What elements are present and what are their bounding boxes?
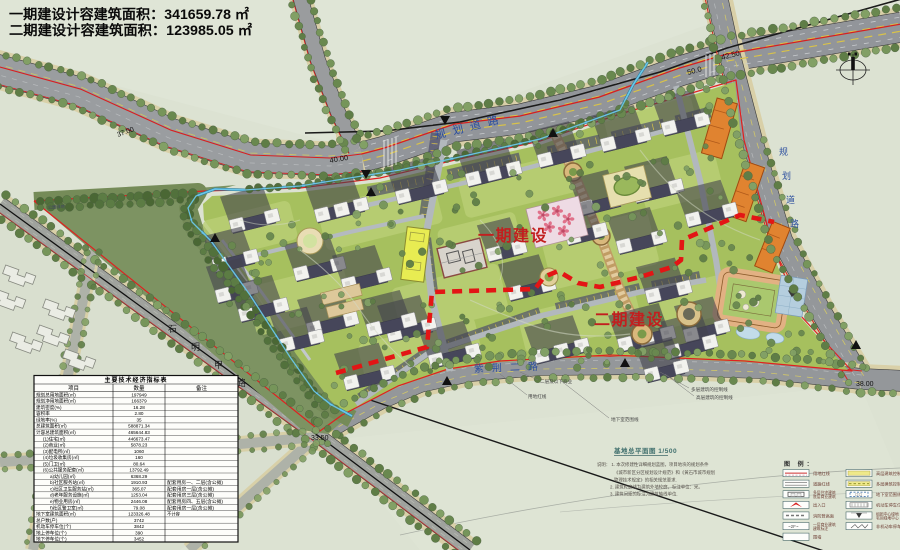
svg-text:3452: 3452 bbox=[134, 537, 145, 542]
svg-text:f)社区警卫室(㎡): f)社区警卫室(㎡) bbox=[50, 504, 84, 511]
svg-text:道: 道 bbox=[786, 194, 795, 205]
svg-text:总建筑面积(㎡): 总建筑面积(㎡) bbox=[36, 423, 67, 430]
svg-text:二层及以下商业: 二层及以下商业 bbox=[540, 378, 573, 385]
svg-text:基地总平面图 1/500: 基地总平面图 1/500 bbox=[613, 446, 677, 455]
svg-text:588871.34: 588871.34 bbox=[128, 424, 150, 429]
svg-text:石: 石 bbox=[168, 324, 177, 334]
svg-text:2.80: 2.80 bbox=[135, 411, 144, 416]
svg-text:《城市新区分区规划设计规范》和《黄石市城市规划: 《城市新区分区规划设计规范》和《黄石市城市规划 bbox=[614, 469, 715, 476]
svg-text:c)社区卫生服务站(㎡): c)社区卫生服务站(㎡) bbox=[50, 486, 94, 493]
svg-text:绿地率(%): 绿地率(%) bbox=[36, 417, 57, 424]
svg-text:1910.93: 1910.93 bbox=[131, 480, 148, 485]
svg-text:3. 建筑间距的标注为建筑轴线单位.: 3. 建筑间距的标注为建筑轴线单位. bbox=[610, 491, 678, 498]
svg-text:底层商业建筑: 底层商业建筑 bbox=[813, 494, 836, 499]
svg-text:197949: 197949 bbox=[131, 392, 147, 397]
svg-text:一期建设计容建筑面积：341659.78 ㎡: 一期建设计容建筑面积：341659.78 ㎡ bbox=[9, 6, 250, 22]
svg-text:管理技术规定》的相关规范要求.: 管理技术规定》的相关规范要求. bbox=[614, 477, 677, 484]
svg-text:2446.08: 2446.08 bbox=[131, 499, 148, 504]
svg-text:总户数(户): 总户数(户) bbox=[36, 517, 58, 524]
svg-text:一期建设: 一期建设 bbox=[478, 226, 548, 245]
svg-text:6368.29: 6368.29 bbox=[131, 474, 148, 479]
svg-text:166379: 166379 bbox=[131, 399, 147, 404]
svg-text:宅间绿地中心: 宅间绿地中心 bbox=[876, 515, 899, 520]
svg-text:16.28: 16.28 bbox=[133, 405, 145, 410]
svg-text:2. 建筑轮廓线为建筑外墙轮廓，标注单位：米。: 2. 建筑轮廓线为建筑外墙轮廓，标注单位：米。 bbox=[610, 484, 703, 491]
svg-text:口口: 口口 bbox=[855, 493, 863, 497]
svg-text:(2)商业(㎡): (2)商业(㎡) bbox=[43, 442, 66, 449]
svg-text:容积率: 容积率 bbox=[36, 410, 50, 417]
svg-text:5878.23: 5878.23 bbox=[131, 443, 148, 448]
svg-text:80.64: 80.64 bbox=[133, 461, 145, 466]
svg-text:明: 明 bbox=[191, 342, 200, 352]
svg-text:3842: 3842 bbox=[134, 524, 145, 529]
svg-text:规: 规 bbox=[779, 147, 788, 157]
svg-text:(6)公共服务配套(㎡): (6)公共服务配套(㎡) bbox=[43, 467, 84, 474]
svg-text:机动车停车位: 机动车停车位 bbox=[876, 502, 900, 509]
svg-text:79.08: 79.08 bbox=[133, 505, 145, 510]
svg-text:3742: 3742 bbox=[134, 518, 145, 523]
svg-text:出入口: 出入口 bbox=[813, 502, 826, 509]
svg-text:~2F~: ~2F~ bbox=[788, 524, 799, 529]
svg-text:不计容: 不计容 bbox=[167, 511, 181, 518]
svg-text:1253.04: 1253.04 bbox=[131, 493, 148, 498]
svg-text:(3)配电所(㎡): (3)配电所(㎡) bbox=[43, 448, 71, 455]
svg-text:主要技术经济指标表: 主要技术经济指标表 bbox=[104, 376, 167, 384]
svg-text:465644.83: 465644.83 bbox=[128, 430, 150, 435]
svg-text:配套用房三层(含公摊): 配套用房三层(含公摊) bbox=[167, 492, 215, 499]
svg-text:说明： 1. 本次修建性详细规划蓝图，项目地块的规划条件: 说明： 1. 本次修建性详细规划蓝图，项目地块的规划条件 bbox=[597, 461, 709, 468]
svg-text:(5)门卫(㎡): (5)门卫(㎡) bbox=[43, 460, 66, 467]
svg-text:建筑密度(%): 建筑密度(%) bbox=[36, 404, 62, 411]
svg-text:机动车停车位(个): 机动车停车位(个) bbox=[36, 523, 72, 530]
svg-text:道路红线: 道路红线 bbox=[813, 481, 831, 488]
svg-text:多层建筑控制线: 多层建筑控制线 bbox=[876, 481, 900, 488]
svg-text:规划总用地面积(㎡): 规划总用地面积(㎡) bbox=[36, 391, 76, 398]
svg-text:二期建设: 二期建设 bbox=[594, 310, 664, 329]
svg-text:围墙: 围墙 bbox=[813, 534, 821, 541]
svg-text:高层建筑控制线: 高层建筑控制线 bbox=[876, 470, 900, 477]
svg-text:(1)住宅(㎡): (1)住宅(㎡) bbox=[43, 435, 66, 441]
svg-text:配套用房四、五层(含公摊): 配套用房四、五层(含公摊) bbox=[167, 498, 224, 505]
svg-text:图 例：: 图 例： bbox=[784, 460, 816, 468]
svg-text:数量: 数量 bbox=[133, 384, 145, 392]
svg-text:消防登高面: 消防登高面 bbox=[813, 512, 834, 519]
svg-text:路: 路 bbox=[790, 218, 799, 229]
svg-text:38.00: 38.00 bbox=[856, 381, 874, 388]
svg-text:1060: 1060 bbox=[134, 449, 145, 454]
svg-text:二期建设计容建筑面积：123985.05 ㎡: 二期建设计容建筑面积：123985.05 ㎡ bbox=[9, 22, 253, 38]
svg-text:规划净用地面积(㎡): 规划净用地面积(㎡) bbox=[36, 398, 76, 405]
svg-text:123326.48: 123326.48 bbox=[128, 512, 150, 517]
svg-text:计容总建筑面积(㎡): 计容总建筑面积(㎡) bbox=[36, 429, 76, 436]
svg-text:项目: 项目 bbox=[68, 385, 79, 392]
svg-text:划: 划 bbox=[782, 170, 791, 181]
svg-text:33.50: 33.50 bbox=[311, 435, 329, 442]
svg-text:e)物业用房(㎡): e)物业用房(㎡) bbox=[50, 498, 81, 505]
svg-text:地下室范围线: 地下室范围线 bbox=[611, 416, 639, 423]
svg-text:地上停车位(个): 地上停车位(个) bbox=[36, 529, 67, 536]
svg-text:多层建筑的控制线: 多层建筑的控制线 bbox=[691, 386, 728, 393]
svg-text:建筑标注: 建筑标注 bbox=[813, 526, 828, 531]
svg-text:地下室范围线: 地下室范围线 bbox=[876, 491, 900, 498]
svg-text:用地红线: 用地红线 bbox=[813, 470, 831, 477]
svg-text:13792.49: 13792.49 bbox=[129, 468, 149, 473]
svg-text:365.07: 365.07 bbox=[132, 487, 146, 492]
svg-text:用地红线: 用地红线 bbox=[528, 393, 547, 400]
svg-text:446673.47: 446673.47 bbox=[128, 436, 150, 441]
svg-text:地下停车位(个): 地下停车位(个) bbox=[36, 536, 67, 543]
svg-text:d)老年服务设施(㎡): d)老年服务设施(㎡) bbox=[50, 492, 90, 499]
svg-text:390: 390 bbox=[135, 530, 143, 535]
svg-text:配套用房一层(含公摊): 配套用房一层(含公摊) bbox=[167, 486, 215, 493]
svg-text:35: 35 bbox=[136, 418, 142, 423]
svg-text:(4)垃圾收集房(㎡): (4)垃圾收集房(㎡) bbox=[43, 454, 80, 461]
svg-text:160: 160 bbox=[135, 455, 143, 460]
svg-text:甲: 甲 bbox=[214, 360, 223, 370]
svg-text:非机动车停车位: 非机动车停车位 bbox=[876, 523, 900, 530]
svg-text:备注: 备注 bbox=[196, 384, 208, 392]
svg-text:a)幼儿园(㎡): a)幼儿园(㎡) bbox=[50, 473, 76, 480]
svg-text:b)社区服务站(㎡): b)社区服务站(㎡) bbox=[50, 479, 85, 486]
svg-text:高层建筑的控制线: 高层建筑的控制线 bbox=[696, 394, 733, 401]
svg-text:配套用房一层(含公摊): 配套用房一层(含公摊) bbox=[167, 504, 215, 511]
svg-text:地下室建筑面积(㎡): 地下室建筑面积(㎡) bbox=[36, 511, 76, 518]
svg-text:配套用房一、二层(含公摊): 配套用房一、二层(含公摊) bbox=[167, 479, 224, 486]
